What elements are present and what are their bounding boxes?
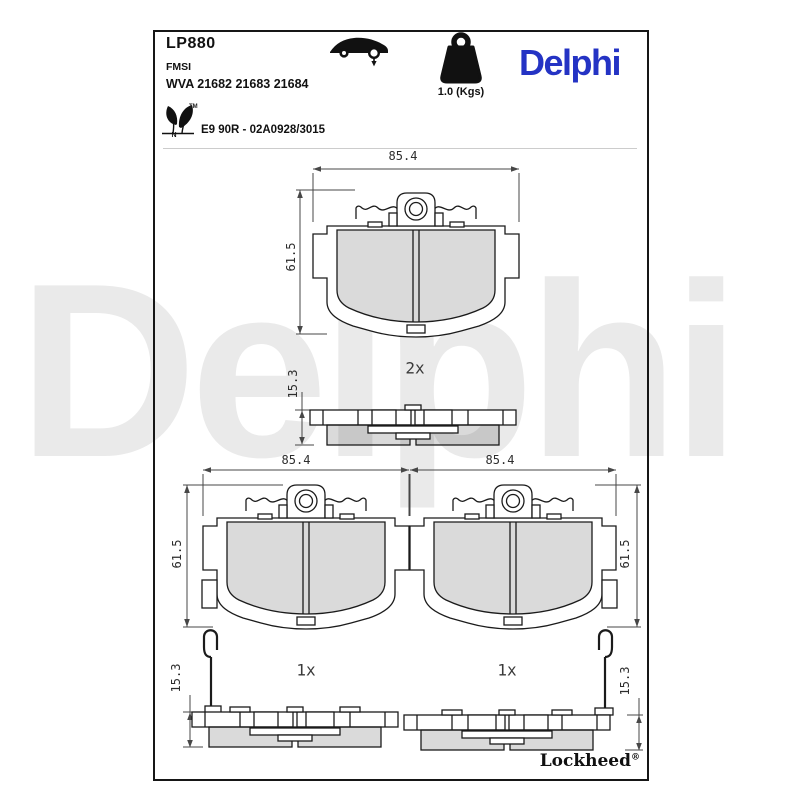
sensor-notch-right bbox=[602, 580, 617, 608]
pad-side-view-top bbox=[295, 392, 516, 445]
car-side-icon bbox=[329, 33, 391, 67]
part-number: LP880 bbox=[166, 35, 216, 53]
wear-sensor-wire-left bbox=[204, 630, 217, 657]
weight-kettlebell-icon bbox=[438, 32, 484, 86]
dim-width-top: 85.4 bbox=[389, 149, 418, 163]
sensor-notch-left bbox=[202, 580, 217, 608]
eco-mark-tm: TM bbox=[189, 104, 198, 110]
pad-side-view-bottom-right bbox=[404, 698, 643, 751]
pad-front-view-top bbox=[296, 166, 519, 337]
quantity-bottom-right: 1x bbox=[497, 661, 516, 680]
eco-mark-letter: N bbox=[168, 132, 180, 139]
dim-height-bottom-right: 61.5 bbox=[618, 540, 632, 569]
wear-sensor-wire-right bbox=[599, 630, 612, 657]
dim-thickness-bottom-right: 15.3 bbox=[618, 667, 632, 696]
delphi-logo: Delphi bbox=[519, 42, 620, 84]
dim-thickness-top: 15.3 bbox=[286, 370, 300, 399]
catalog-page: { "header": { "part_number": "LP880", "f… bbox=[0, 0, 800, 800]
dim-width-bottom-left: 85.4 bbox=[282, 453, 311, 467]
quantity-top: 2x bbox=[405, 359, 424, 378]
dim-thickness-bottom-left: 15.3 bbox=[169, 664, 183, 693]
fmsi-label: FMSI bbox=[166, 61, 191, 73]
wva-numbers: WVA 21682 21683 21684 bbox=[166, 77, 308, 91]
dim-width-bottom-right: 85.4 bbox=[486, 453, 515, 467]
pad-side-view-bottom-left bbox=[183, 695, 398, 748]
registered-mark: ® bbox=[631, 752, 640, 762]
quantity-bottom-left: 1x bbox=[296, 661, 315, 680]
pad-front-view-bottom-right bbox=[410, 467, 641, 730]
lockheed-brand: Lockheed® bbox=[478, 751, 640, 771]
technical-drawings bbox=[155, 150, 647, 782]
dim-height-bottom-left: 61.5 bbox=[170, 540, 184, 569]
lockheed-label: Lockheed bbox=[540, 751, 631, 771]
homologation-number: E9 90R - 02A0928/3015 bbox=[201, 124, 325, 136]
dim-height-top: 61.5 bbox=[284, 243, 298, 272]
weight-value: 1.0 (Kgs) bbox=[427, 86, 495, 98]
